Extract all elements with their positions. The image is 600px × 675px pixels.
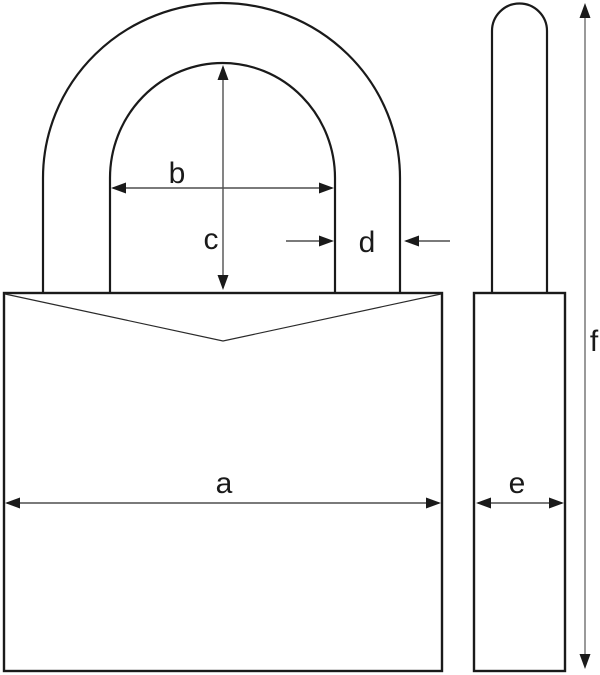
dimension-label-b: b <box>169 157 186 190</box>
side-view <box>474 4 565 672</box>
dimension-label-f: f <box>590 325 599 358</box>
arrowhead-right <box>319 183 334 194</box>
front-shackle-outer-outline <box>43 3 400 293</box>
dimension-c: c <box>204 65 229 290</box>
arrowhead-left <box>111 183 126 194</box>
dimension-f: f <box>580 3 599 669</box>
arrowhead-down <box>580 654 591 669</box>
arrowhead-up <box>218 65 229 80</box>
dimension-label-e: e <box>509 467 526 500</box>
arrowhead-left <box>404 236 419 247</box>
dimension-label-d: d <box>359 226 376 259</box>
dimension-label-c: c <box>204 223 219 256</box>
arrowhead-up <box>580 3 591 18</box>
dimension-d: d <box>286 226 450 259</box>
side-shackle-outline <box>492 4 547 294</box>
arrowhead-down <box>218 275 229 290</box>
diagram-canvas: b c d a e <box>0 0 600 675</box>
padlock-dimension-diagram: b c d a e <box>0 0 600 675</box>
dimension-label-a: a <box>216 467 233 500</box>
arrowhead-right <box>319 236 334 247</box>
